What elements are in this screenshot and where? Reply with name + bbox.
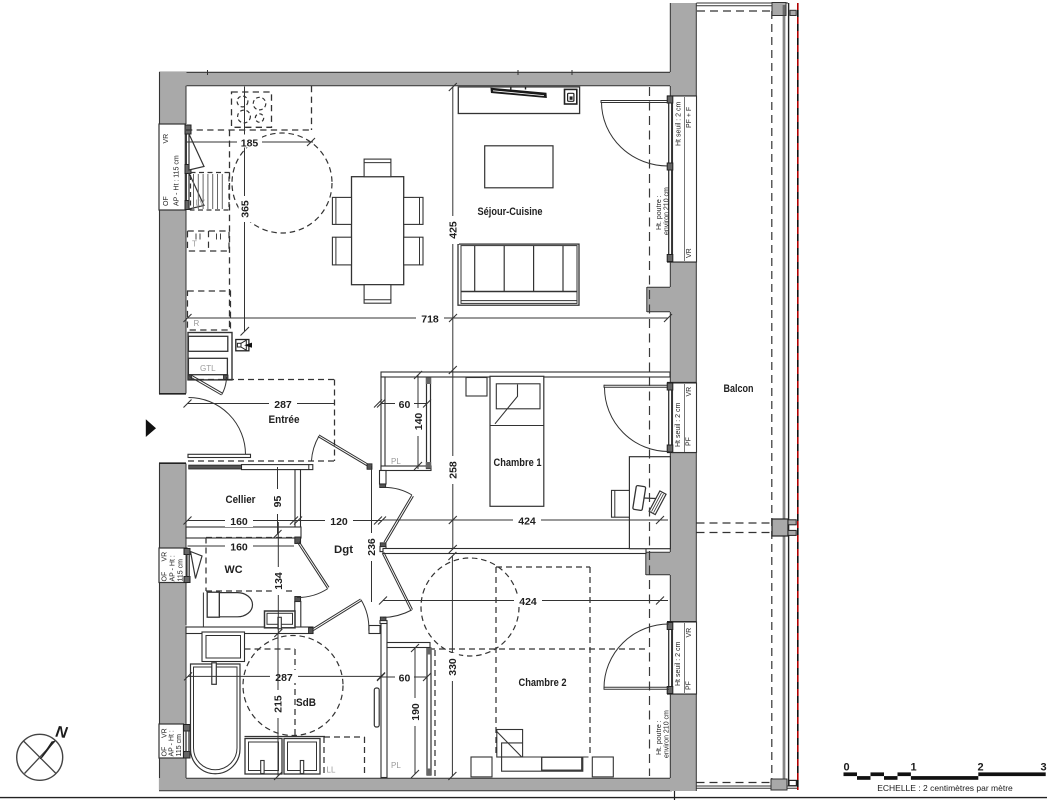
svg-text:WC: WC — [225, 564, 243, 576]
svg-text:LL: LL — [327, 766, 336, 775]
svg-text:1: 1 — [910, 762, 916, 774]
svg-text:3: 3 — [1040, 762, 1046, 774]
svg-text:60: 60 — [399, 673, 411, 685]
svg-text:AP - Ht : 115 cm: AP - Ht : 115 cm — [174, 155, 181, 206]
svg-text:115 cm: 115 cm — [178, 559, 185, 582]
svg-text:120: 120 — [330, 516, 348, 528]
svg-text:160: 160 — [230, 542, 248, 554]
svg-text:287: 287 — [274, 399, 292, 411]
svg-text:Cellier: Cellier — [226, 494, 257, 506]
svg-text:Ht. poutre :: Ht. poutre : — [656, 720, 663, 755]
svg-text:PF: PF — [686, 437, 693, 446]
svg-text:134: 134 — [273, 572, 285, 590]
svg-text:425: 425 — [448, 221, 460, 239]
svg-text:SdB: SdB — [296, 697, 316, 709]
svg-text:Ht seuil : 2 cm: Ht seuil : 2 cm — [675, 402, 682, 447]
svg-text:718: 718 — [421, 314, 439, 326]
svg-text:VR: VR — [686, 387, 693, 397]
svg-text:ECHELLE : 2 centimètres par mè: ECHELLE : 2 centimètres par mètre — [877, 783, 1013, 793]
svg-text:LV: LV — [196, 199, 206, 208]
svg-text:330: 330 — [447, 658, 459, 676]
svg-text:environ 210 cm: environ 210 cm — [664, 710, 671, 758]
svg-text:258: 258 — [448, 461, 460, 479]
svg-text:185: 185 — [241, 138, 259, 150]
svg-text:T: T — [192, 240, 197, 249]
svg-text:PL: PL — [391, 457, 401, 466]
svg-text:VR: VR — [686, 248, 693, 258]
svg-text:Chambre 1: Chambre 1 — [494, 457, 542, 469]
svg-text:424: 424 — [518, 516, 536, 528]
svg-text:365: 365 — [240, 200, 252, 218]
svg-text:VR: VR — [162, 552, 169, 562]
svg-text:424: 424 — [519, 596, 537, 608]
svg-text:140: 140 — [413, 413, 425, 431]
svg-text:Balcon: Balcon — [724, 383, 754, 395]
svg-text:VR: VR — [162, 728, 169, 738]
svg-text:60: 60 — [399, 399, 411, 411]
svg-text:AP - Ht :: AP - Ht : — [170, 555, 177, 581]
svg-text:environ 210 cm: environ 210 cm — [664, 187, 671, 235]
svg-text:AP - Ht :: AP - Ht : — [169, 730, 176, 756]
svg-text:OF: OF — [163, 196, 170, 206]
svg-text:R: R — [194, 319, 200, 328]
svg-text:Entrée: Entrée — [269, 414, 300, 426]
svg-text:190: 190 — [410, 703, 422, 721]
svg-text:OF: OF — [162, 572, 169, 582]
svg-text:Chambre 2: Chambre 2 — [519, 677, 567, 689]
svg-text:95: 95 — [272, 496, 284, 508]
svg-text:PF + F: PF + F — [686, 107, 693, 128]
svg-text:Ht seuil : 2 cm: Ht seuil : 2 cm — [676, 101, 683, 146]
svg-text:236: 236 — [366, 538, 378, 556]
svg-text:PL: PL — [391, 761, 401, 770]
svg-text:GTL: GTL — [200, 364, 216, 373]
svg-text:Ht seuil : 2 cm: Ht seuil : 2 cm — [675, 641, 682, 686]
svg-text:215: 215 — [273, 695, 285, 713]
svg-text:VR: VR — [686, 628, 693, 638]
svg-text:2: 2 — [977, 762, 983, 774]
svg-text:115 cm: 115 cm — [176, 734, 183, 757]
svg-text:Séjour-Cuisine: Séjour-Cuisine — [478, 206, 543, 218]
svg-text:OF: OF — [162, 747, 169, 757]
svg-text:VR: VR — [163, 134, 170, 144]
svg-text:Dgt: Dgt — [334, 544, 353, 556]
svg-text:160: 160 — [230, 516, 248, 528]
svg-text:Ht. poutre :: Ht. poutre : — [656, 195, 663, 230]
svg-text:PF: PF — [686, 681, 693, 690]
svg-text:0: 0 — [843, 762, 849, 774]
